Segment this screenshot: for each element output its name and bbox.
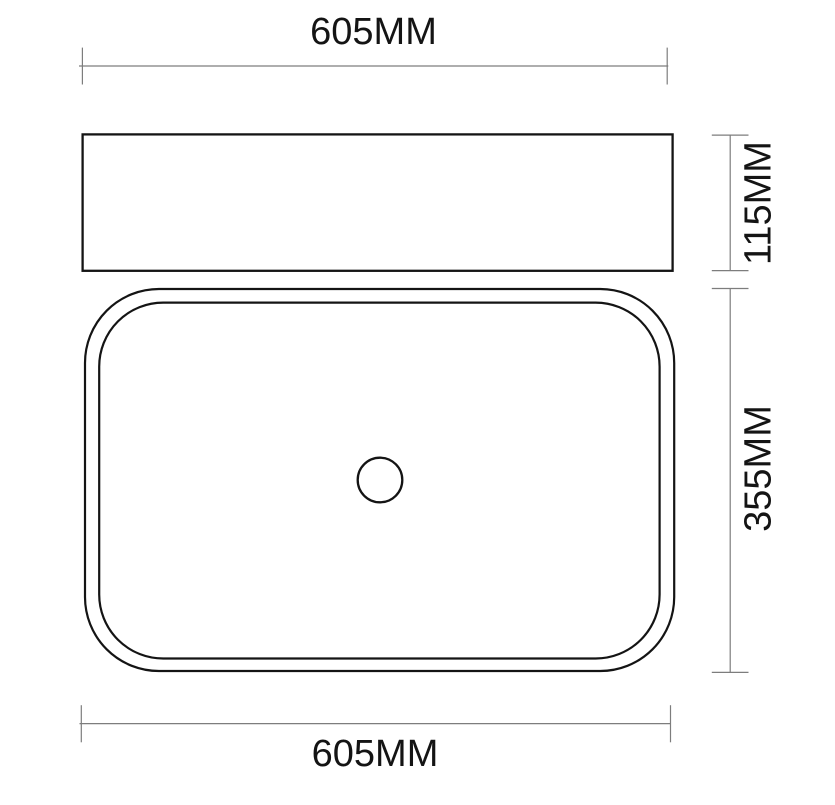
svg-text:605MM: 605MM (310, 11, 437, 53)
svg-text:115MM: 115MM (738, 141, 780, 265)
svg-text:605MM: 605MM (312, 733, 439, 775)
svg-text:355MM: 355MM (738, 405, 780, 532)
